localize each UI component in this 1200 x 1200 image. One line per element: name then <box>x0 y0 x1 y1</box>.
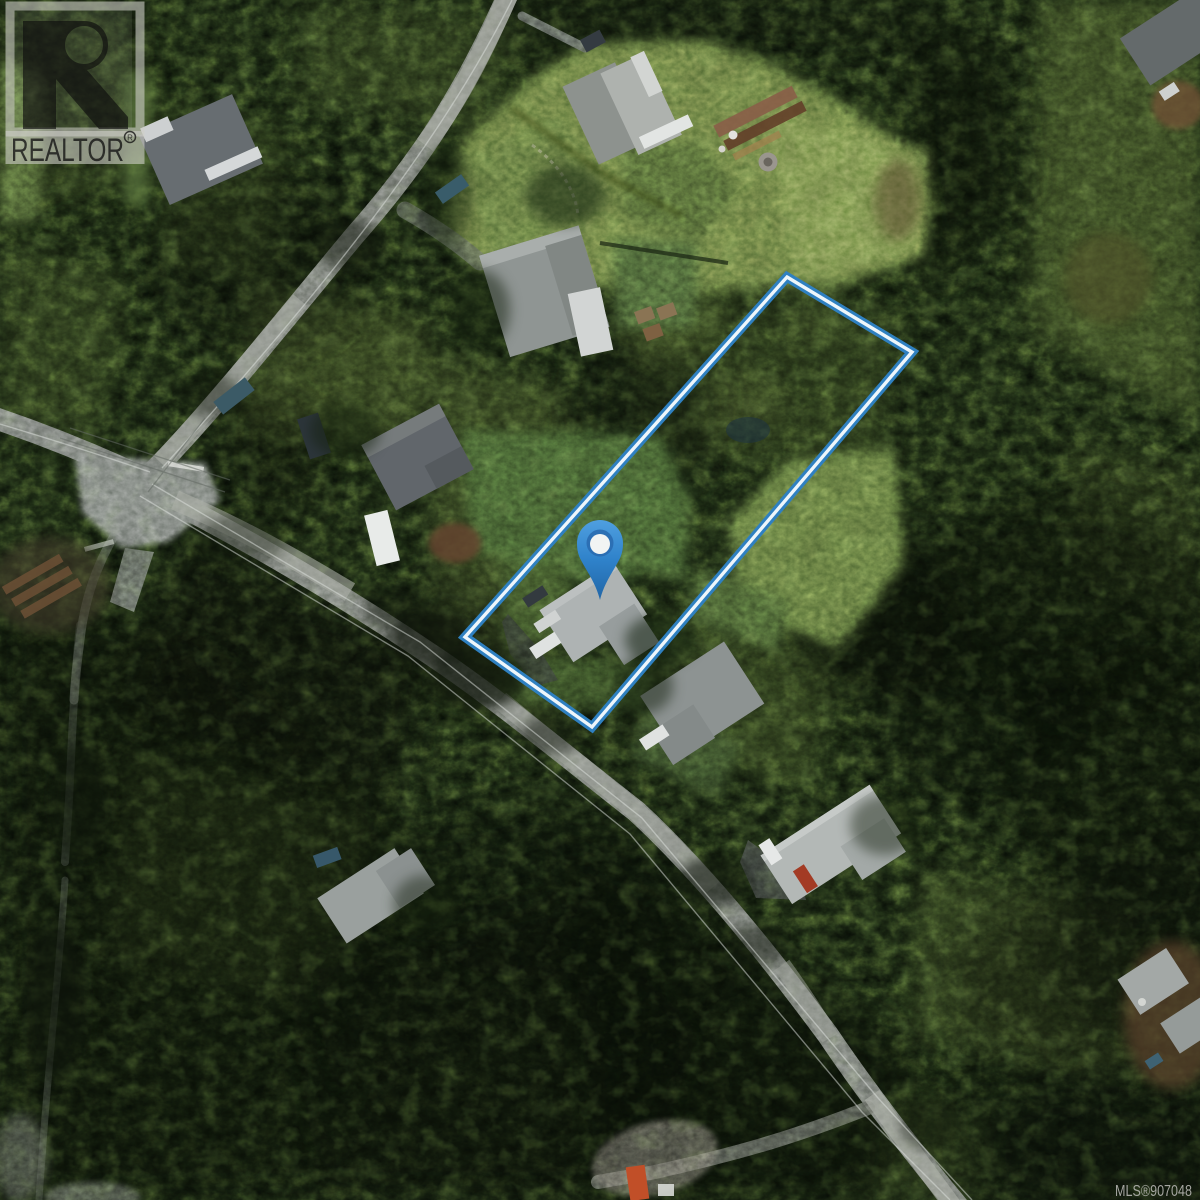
svg-text:REALTOR: REALTOR <box>11 132 124 168</box>
svg-text:R: R <box>127 134 133 143</box>
svg-text:MLS®907048: MLS®907048 <box>1115 1183 1192 1200</box>
